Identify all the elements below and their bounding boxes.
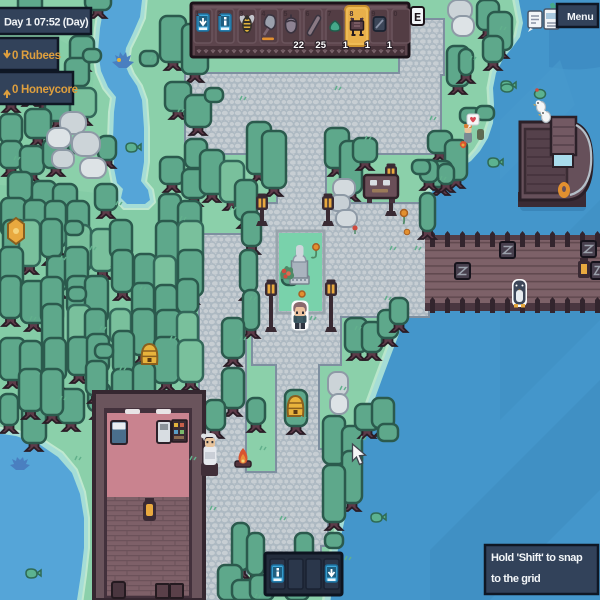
svg-text:22: 22 (293, 40, 304, 51)
svg-text:0: 0 (394, 11, 398, 18)
svg-text:4: 4 (262, 11, 266, 18)
svg-text:Menu: Menu (567, 11, 594, 23)
svg-text:Hold 'Shift' to snap: Hold 'Shift' to snap (491, 552, 583, 564)
svg-text:1: 1 (365, 40, 371, 51)
svg-text:2: 2 (218, 11, 222, 18)
svg-text:1: 1 (387, 40, 393, 51)
svg-text:9: 9 (372, 11, 376, 18)
svg-text:Day 1 07:52 (Day): Day 1 07:52 (Day) (4, 17, 89, 29)
svg-text:25: 25 (315, 40, 326, 51)
svg-text:5: 5 (284, 11, 288, 18)
svg-text:1: 1 (196, 11, 200, 18)
svg-text:6: 6 (306, 11, 310, 18)
svg-text:to the grid: to the grid (491, 573, 540, 585)
svg-text:1: 1 (343, 40, 349, 51)
svg-text:8: 8 (350, 11, 354, 18)
svg-text:E: E (414, 11, 421, 25)
svg-text:0 Honeycore: 0 Honeycore (12, 84, 78, 96)
svg-text:0 Rubees: 0 Rubees (12, 50, 61, 62)
svg-text:3: 3 (240, 11, 244, 18)
svg-text:7: 7 (328, 11, 332, 18)
